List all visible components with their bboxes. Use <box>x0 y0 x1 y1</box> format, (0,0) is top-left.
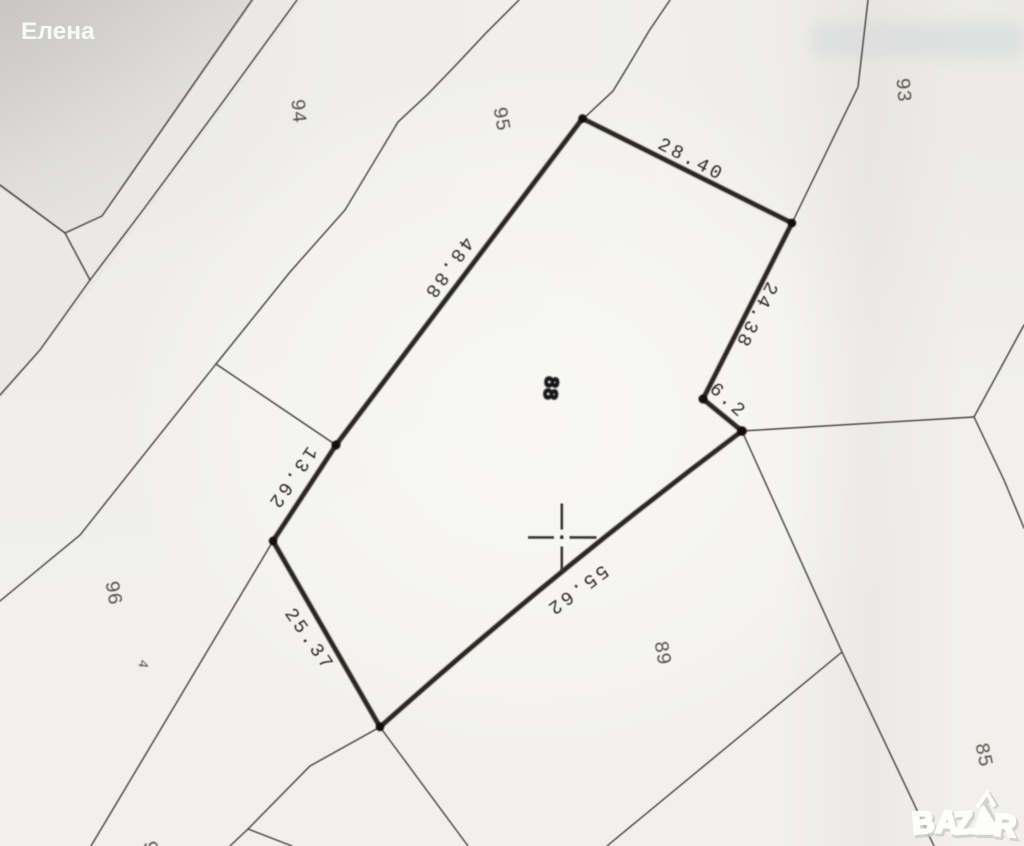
svg-text:95: 95 <box>487 105 514 133</box>
svg-text:B: B <box>911 804 936 841</box>
svg-text:96: 96 <box>99 579 126 607</box>
svg-text:Елена: Елена <box>21 18 95 45</box>
svg-text:93: 93 <box>889 77 914 103</box>
svg-text:R: R <box>992 807 1017 844</box>
svg-text:94: 94 <box>284 98 309 124</box>
svg-text:89: 89 <box>648 639 675 667</box>
svg-text:85: 85 <box>968 741 995 769</box>
svg-text:Z: Z <box>953 805 974 841</box>
svg-text:88: 88 <box>536 375 561 401</box>
